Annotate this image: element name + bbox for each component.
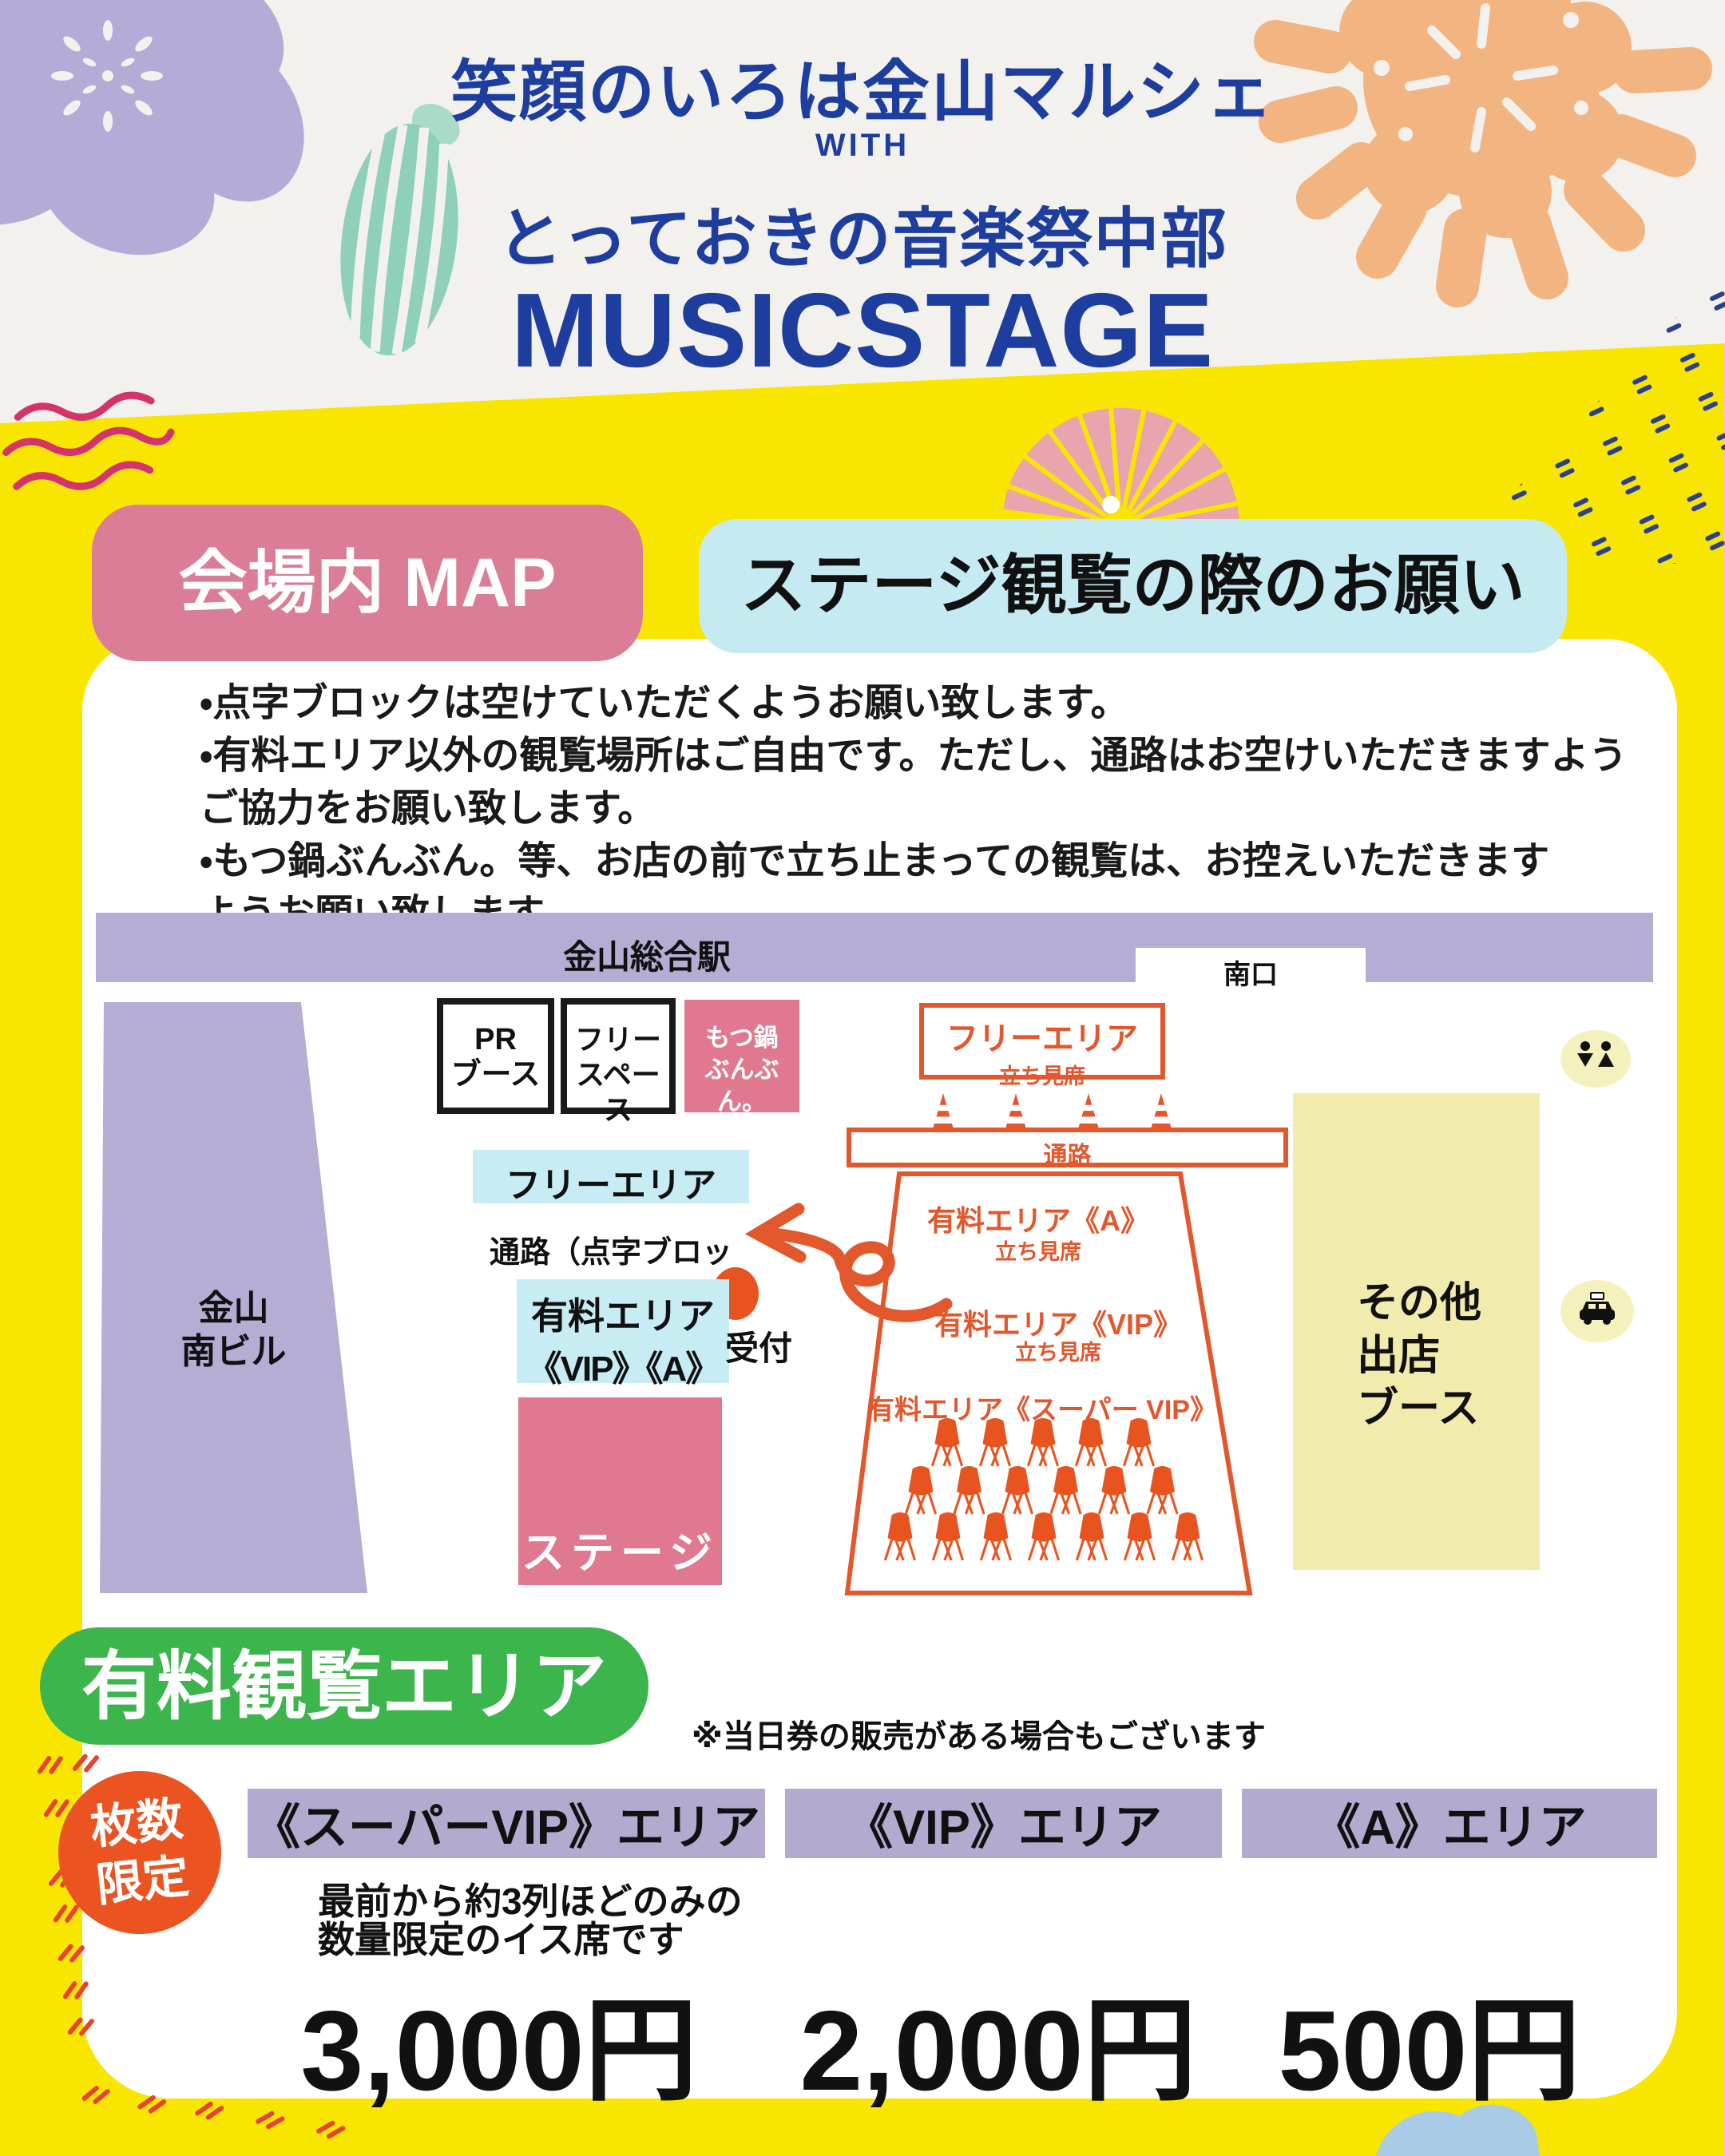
paid-area-reception-box: 有料エリア 《VIP》《A》 [517,1279,729,1383]
paid-viewing-badge: 有料観覧エリア [40,1627,648,1745]
station-bar [96,913,1653,982]
music-stage-title: MUSICSTAGE [0,270,1725,390]
area-header-vip: 《VIP》エリア [785,1789,1222,1858]
south-exit-box: 南口 [1136,948,1366,985]
free-area-box: フリーエリア [473,1150,749,1203]
price-svip: 3,000円 [300,1958,697,2122]
station-label: 金山総合駅 [527,930,767,979]
festival-title: とっておきの音楽祭中部 [0,185,1725,280]
notice-line: ・もつ鍋ぶんぶん。等、お店の前で立ち止まっての観覧は、お控えいただきます [200,829,1685,885]
confetti-dash-icon [255,2107,285,2134]
area-header-svip: 《スーパーVIP》エリア [248,1789,765,1858]
confetti-dash-icon [194,2097,224,2124]
pr-booth-box: PRブース [437,998,554,1114]
price-vip: 2,000円 [799,1958,1196,2122]
map-section-badge: 会場内 MAP [92,505,643,661]
south-exit-label: 南口 [1136,953,1366,992]
paid-a-sub: 立ち見席 [878,1235,1198,1266]
paid-svip-label: 有料エリア《スーパー VIP》 [866,1388,1218,1427]
notice-line: ・点字ブロックは空けていただくようお願い致します。 [200,671,1685,727]
other-booth-box: その他出店ブース [1293,1093,1540,1570]
free-space-box: フリースペース [561,998,676,1114]
confetti-dash-icon [81,2081,111,2110]
aisle-strip: 通路 [847,1128,1288,1167]
confetti-dash-icon [57,1938,86,1968]
pink-waves-icon [1,391,176,496]
notice-line: ご協力をお願い致します。 [200,776,1685,832]
same-day-note: ※当日券の販売がある場合もございます [692,1710,1266,1757]
title-with: WITH [0,128,1725,164]
reception-label: 受付 [725,1322,792,1370]
event-title: 笑顔のいろは金山マルシェ [0,38,1725,135]
paid-a-label: 有料エリア《A》 [878,1198,1198,1239]
paid-vip-sub: 立ち見席 [898,1335,1218,1366]
notice-line: ・有料エリア以外の観覧場所はご自由です。ただし、通路はお空けいただきますよう [200,723,1685,779]
motsunabe-box: もつ鍋ぶんぶん。 [684,1000,799,1112]
stage-box: ステージ [518,1397,722,1585]
price-a: 500円 [1279,1958,1581,2122]
notice-section-badge: ステージ観覧の際のお願い [699,519,1567,653]
building-label: 金山南ビル [144,1287,323,1373]
svip-desc-line: 数量限定のイス席です [318,1911,684,1964]
pink-dahlia-icon [1001,406,1242,527]
free-area-standing-box: フリーエリア 立ち見席 [919,1003,1165,1080]
confetti-dash-icon [37,1750,64,1780]
area-header-a: 《A》エリア [1242,1789,1657,1858]
flyer-page: 笑顔のいろは金山マルシェ WITH とっておきの音楽祭中部 MUSICSTAGE… [0,0,1725,2156]
